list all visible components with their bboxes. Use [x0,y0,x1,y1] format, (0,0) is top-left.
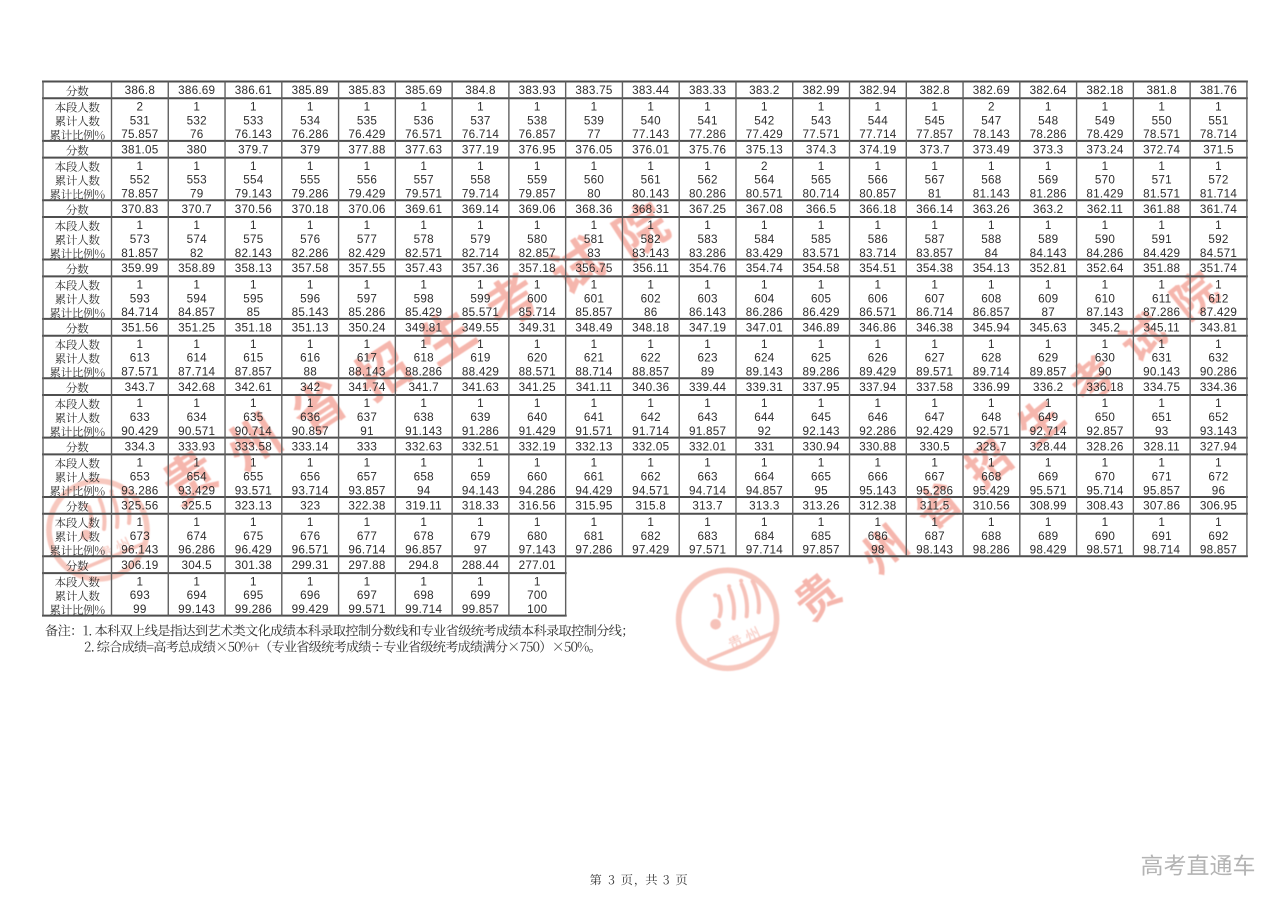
svg-text:367.25: 367.25 [689,203,726,216]
svg-text:655: 655 [243,470,264,483]
svg-text:385.83: 385.83 [348,84,385,97]
svg-text:85.286: 85.286 [348,306,385,319]
svg-text:97: 97 [474,544,488,557]
svg-text:1: 1 [875,338,882,351]
svg-text:550: 550 [1152,114,1173,127]
svg-text:1: 1 [307,457,314,470]
svg-text:89.571: 89.571 [916,366,953,379]
svg-text:1: 1 [761,457,768,470]
svg-text:1: 1 [477,575,484,588]
svg-text:1: 1 [591,516,598,529]
svg-text:96.857: 96.857 [405,544,442,557]
svg-text:534: 534 [300,114,321,127]
svg-text:349.81: 349.81 [405,322,442,335]
svg-text:93.143: 93.143 [1200,425,1237,438]
svg-text:567: 567 [925,174,945,187]
svg-text:1: 1 [250,160,257,173]
svg-text:1: 1 [193,219,200,232]
svg-text:612: 612 [1208,292,1228,305]
svg-text:88.571: 88.571 [519,366,556,379]
svg-text:1: 1 [307,160,314,173]
svg-text:626: 626 [868,352,888,365]
svg-text:332.63: 332.63 [405,440,442,453]
svg-text:1: 1 [761,101,768,114]
svg-text:667: 667 [925,470,945,483]
svg-text:313.26: 313.26 [802,500,839,513]
svg-text:597: 597 [357,292,377,305]
svg-text:699: 699 [470,589,490,602]
svg-text:94.714: 94.714 [689,484,726,497]
svg-text:1: 1 [1045,457,1052,470]
svg-text:594: 594 [187,292,208,305]
svg-text:1: 1 [477,160,484,173]
svg-text:78.286: 78.286 [1030,128,1067,141]
svg-text:357.55: 357.55 [348,262,385,275]
svg-text:1: 1 [761,219,768,232]
svg-text:93.286: 93.286 [121,484,158,497]
svg-text:99.571: 99.571 [348,603,385,616]
svg-text:337.94: 337.94 [859,381,896,394]
svg-text:1: 1 [364,457,371,470]
svg-text:328.11: 328.11 [1144,440,1180,453]
svg-text:333.93: 333.93 [178,440,215,453]
svg-text:319.11: 319.11 [406,500,442,513]
svg-text:337.95: 337.95 [802,381,839,394]
svg-text:77.857: 77.857 [916,128,953,141]
svg-text:639: 639 [470,411,490,424]
svg-text:585: 585 [811,233,832,246]
svg-text:382.94: 382.94 [859,84,896,97]
svg-text:351.56: 351.56 [121,322,158,335]
svg-text:603: 603 [697,292,717,305]
svg-text:92.429: 92.429 [916,425,953,438]
svg-text:646: 646 [868,411,888,424]
svg-text:1: 1 [647,160,654,173]
svg-text:1: 1 [591,219,598,232]
svg-text:1: 1 [364,219,371,232]
svg-text:80.857: 80.857 [859,188,896,201]
svg-text:99.714: 99.714 [405,603,442,616]
svg-text:1: 1 [875,219,882,232]
svg-text:1: 1 [364,101,371,114]
svg-text:87.143: 87.143 [1086,306,1123,319]
svg-text:1: 1 [1215,457,1222,470]
svg-text:1: 1 [647,457,654,470]
svg-text:1: 1 [1102,457,1109,470]
svg-text:89.714: 89.714 [973,366,1010,379]
svg-text:366.18: 366.18 [859,203,896,216]
svg-text:88.429: 88.429 [462,366,499,379]
svg-text:80.286: 80.286 [689,188,726,201]
svg-text:1: 1 [1102,219,1109,232]
svg-text:535: 535 [357,114,378,127]
svg-text:1: 1 [364,279,371,292]
svg-text:1: 1 [250,575,257,588]
svg-text:333.58: 333.58 [235,440,272,453]
svg-text:76.429: 76.429 [348,128,385,141]
svg-text:566: 566 [868,174,888,187]
svg-text:98.571: 98.571 [1086,544,1123,557]
svg-text:90.857: 90.857 [292,425,329,438]
svg-text:1: 1 [250,338,257,351]
svg-text:85.429: 85.429 [405,306,442,319]
svg-text:700: 700 [527,589,548,602]
svg-text:86.571: 86.571 [859,306,896,319]
svg-text:374.3: 374.3 [806,144,837,157]
svg-text:681: 681 [584,530,604,543]
svg-text:315.8: 315.8 [636,500,667,513]
svg-text:382.18: 382.18 [1086,84,1123,97]
svg-text:652: 652 [1208,411,1228,424]
svg-text:531: 531 [130,114,150,127]
svg-text:1: 1 [1215,219,1222,232]
svg-text:79.857: 79.857 [519,188,556,201]
svg-text:77.429: 77.429 [746,128,783,141]
svg-text:308.43: 308.43 [1086,500,1123,513]
svg-text:561: 561 [641,174,661,187]
svg-text:98.429: 98.429 [1030,544,1067,557]
svg-text:90.143: 90.143 [1143,366,1180,379]
svg-text:583: 583 [697,233,717,246]
svg-text:1: 1 [647,219,654,232]
svg-text:613: 613 [130,352,150,365]
svg-text:1: 1 [307,219,314,232]
svg-text:331: 331 [754,440,774,453]
svg-text:82.143: 82.143 [235,247,272,260]
svg-text:89.429: 89.429 [859,366,896,379]
svg-text:673: 673 [130,530,150,543]
svg-text:357.36: 357.36 [462,262,499,275]
svg-text:1: 1 [420,397,427,410]
svg-text:629: 629 [1038,352,1058,365]
svg-text:330.5: 330.5 [919,440,950,453]
svg-text:307.86: 307.86 [1143,500,1180,513]
svg-text:1: 1 [477,516,484,529]
svg-text:83.429: 83.429 [746,247,783,260]
svg-text:1: 1 [1215,101,1222,114]
svg-text:538: 538 [527,114,547,127]
svg-text:638: 638 [414,411,434,424]
svg-text:356.75: 356.75 [575,262,612,275]
svg-text:98: 98 [871,544,885,557]
svg-text:578: 578 [414,233,434,246]
svg-text:343.81: 343.81 [1200,322,1237,335]
svg-text:553: 553 [187,174,207,187]
svg-text:1: 1 [591,457,598,470]
svg-text:1: 1 [364,338,371,351]
svg-text:1: 1 [875,457,882,470]
svg-text:89.857: 89.857 [1030,366,1067,379]
svg-text:87.429: 87.429 [1200,306,1237,319]
svg-text:1: 1 [534,397,541,410]
svg-text:568: 568 [981,174,1001,187]
svg-text:76.571: 76.571 [405,128,442,141]
svg-text:1: 1 [1102,101,1109,114]
svg-text:1: 1 [647,516,654,529]
svg-text:79.714: 79.714 [462,188,499,201]
svg-text:2: 2 [137,101,144,114]
svg-text:373.24: 373.24 [1086,144,1123,157]
svg-text:1: 1 [988,397,995,410]
svg-text:90.429: 90.429 [121,425,158,438]
svg-text:588: 588 [981,233,1001,246]
svg-text:617: 617 [357,352,377,365]
svg-text:99.143: 99.143 [178,603,215,616]
svg-text:90.286: 90.286 [1200,366,1237,379]
svg-text:94.286: 94.286 [519,484,556,497]
svg-text:1: 1 [364,397,371,410]
svg-text:1: 1 [1158,397,1165,410]
svg-text:1: 1 [761,397,768,410]
svg-text:1: 1 [1102,397,1109,410]
svg-text:643: 643 [697,411,717,424]
svg-text:595: 595 [243,292,264,305]
svg-text:614: 614 [187,352,208,365]
svg-text:312.38: 312.38 [859,500,896,513]
svg-text:381.05: 381.05 [121,144,158,157]
svg-text:1: 1 [818,457,825,470]
svg-text:83.857: 83.857 [916,247,953,260]
svg-text:84.857: 84.857 [178,306,215,319]
svg-text:574: 574 [187,233,208,246]
svg-text:592: 592 [1208,233,1228,246]
svg-text:677: 677 [357,530,377,543]
svg-text:363.2: 363.2 [1033,203,1064,216]
svg-text:88.286: 88.286 [405,366,442,379]
svg-text:1: 1 [477,279,484,292]
svg-text:1: 1 [1158,101,1165,114]
svg-text:1: 1 [193,575,200,588]
svg-text:1: 1 [534,338,541,351]
svg-text:76: 76 [190,128,204,141]
svg-text:328.26: 328.26 [1086,440,1123,453]
svg-text:342.68: 342.68 [178,381,215,394]
svg-text:100: 100 [527,603,548,616]
svg-text:556: 556 [357,174,377,187]
svg-text:1: 1 [137,575,144,588]
svg-text:316.56: 316.56 [519,500,556,513]
svg-text:306.95: 306.95 [1200,500,1237,513]
svg-text:86.714: 86.714 [916,306,953,319]
svg-text:1: 1 [193,457,200,470]
svg-text:581: 581 [584,233,604,246]
svg-text:382.69: 382.69 [973,84,1010,97]
svg-text:334.36: 334.36 [1200,381,1237,394]
svg-text:698: 698 [414,589,434,602]
svg-text:92.714: 92.714 [1030,425,1067,438]
svg-text:336.18: 336.18 [1086,381,1123,394]
svg-text:1: 1 [534,279,541,292]
svg-text:88: 88 [303,366,317,379]
svg-text:373.49: 373.49 [973,144,1010,157]
svg-text:1: 1 [591,279,598,292]
svg-text:349.31: 349.31 [519,322,556,335]
svg-text:684: 684 [754,530,775,543]
svg-text:572: 572 [1208,174,1228,187]
svg-text:1: 1 [250,397,257,410]
svg-text:99.429: 99.429 [292,603,329,616]
svg-text:618: 618 [414,352,434,365]
svg-text:1: 1 [1158,219,1165,232]
svg-text:1: 1 [988,160,995,173]
svg-text:653: 653 [130,470,150,483]
svg-text:354.76: 354.76 [689,262,726,275]
svg-text:382.99: 382.99 [802,84,839,97]
svg-text:601: 601 [584,292,604,305]
svg-text:1: 1 [818,338,825,351]
svg-text:88.857: 88.857 [632,366,669,379]
svg-text:376.05: 376.05 [575,144,612,157]
svg-text:1: 1 [250,516,257,529]
svg-text:98.286: 98.286 [973,544,1010,557]
svg-text:1: 1 [534,101,541,114]
svg-text:537: 537 [470,114,490,127]
svg-text:333: 333 [357,440,377,453]
svg-text:78.857: 78.857 [121,188,158,201]
svg-text:1: 1 [534,219,541,232]
svg-text:573: 573 [130,233,150,246]
svg-text:575: 575 [243,233,264,246]
svg-text:383.33: 383.33 [689,84,726,97]
svg-text:1: 1 [1215,338,1222,351]
svg-text:328.7: 328.7 [976,440,1007,453]
svg-text:1: 1 [307,338,314,351]
svg-text:97.143: 97.143 [519,544,556,557]
svg-text:631: 631 [1152,352,1172,365]
svg-text:683: 683 [697,530,717,543]
svg-text:347.01: 347.01 [746,322,783,335]
svg-text:1: 1 [1045,338,1052,351]
svg-text:89: 89 [701,366,715,379]
svg-text:383.75: 383.75 [575,84,612,97]
svg-text:91.286: 91.286 [462,425,499,438]
svg-text:376.01: 376.01 [632,144,669,157]
svg-text:332.13: 332.13 [575,440,612,453]
svg-text:593: 593 [130,292,150,305]
svg-text:367.08: 367.08 [746,203,783,216]
svg-text:1: 1 [534,160,541,173]
svg-text:341.11: 341.11 [576,381,612,394]
svg-text:1: 1 [1158,279,1165,292]
svg-text:87.571: 87.571 [121,366,158,379]
svg-text:78.429: 78.429 [1086,128,1123,141]
svg-text:76.714: 76.714 [462,128,499,141]
svg-text:587: 587 [925,233,945,246]
svg-text:351.25: 351.25 [178,322,215,335]
svg-text:83.714: 83.714 [859,247,896,260]
svg-text:1: 1 [420,516,427,529]
svg-text:676: 676 [300,530,320,543]
svg-text:84: 84 [985,247,999,260]
svg-text:366.5: 366.5 [806,203,837,216]
svg-text:81.571: 81.571 [1143,188,1180,201]
svg-text:376.95: 376.95 [519,144,556,157]
svg-text:596: 596 [300,292,320,305]
svg-text:327.94: 327.94 [1200,440,1237,453]
svg-text:333.14: 333.14 [292,440,329,453]
svg-text:332.01: 332.01 [689,440,726,453]
svg-text:85.571: 85.571 [462,306,499,319]
svg-text:95.714: 95.714 [1086,484,1123,497]
svg-text:627: 627 [925,352,945,365]
svg-text:99.857: 99.857 [462,603,499,616]
svg-text:80.714: 80.714 [802,188,839,201]
svg-text:82.429: 82.429 [348,247,385,260]
svg-text:368.31: 368.31 [632,203,669,216]
svg-text:82.286: 82.286 [292,247,329,260]
svg-text:85.143: 85.143 [292,306,329,319]
svg-text:557: 557 [414,174,434,187]
svg-text:86: 86 [644,306,658,319]
svg-text:1: 1 [137,160,144,173]
svg-text:83.571: 83.571 [802,247,839,260]
svg-text:1: 1 [818,516,825,529]
svg-text:1: 1 [420,279,427,292]
svg-text:533: 533 [243,114,263,127]
svg-text:562: 562 [697,174,717,187]
svg-text:369.14: 369.14 [462,203,499,216]
svg-text:1: 1 [420,457,427,470]
svg-text:348.49: 348.49 [575,322,612,335]
svg-text:83.286: 83.286 [689,247,726,260]
svg-text:1: 1 [1045,516,1052,529]
svg-text:345.94: 345.94 [973,322,1010,335]
svg-text:675: 675 [243,530,264,543]
svg-text:342.61: 342.61 [235,381,272,394]
svg-text:674: 674 [187,530,208,543]
svg-text:1: 1 [477,457,484,470]
svg-text:91.714: 91.714 [632,425,669,438]
svg-text:96.429: 96.429 [235,544,272,557]
svg-text:1: 1 [477,338,484,351]
svg-text:313.3: 313.3 [749,500,780,513]
svg-text:620: 620 [527,352,548,365]
svg-text:1: 1 [818,279,825,292]
svg-text:383.93: 383.93 [519,84,556,97]
svg-text:697: 697 [357,589,377,602]
svg-text:608: 608 [981,292,1001,305]
svg-text:672: 672 [1208,470,1228,483]
svg-text:93.714: 93.714 [292,484,329,497]
svg-text:1: 1 [137,516,144,529]
svg-text:87: 87 [1041,306,1055,319]
svg-text:696: 696 [300,589,320,602]
svg-text:602: 602 [641,292,661,305]
svg-text:96.714: 96.714 [348,544,385,557]
svg-text:85.714: 85.714 [519,306,556,319]
svg-text:637: 637 [357,411,377,424]
svg-text:89.286: 89.286 [802,366,839,379]
svg-text:345.11: 345.11 [1144,322,1180,335]
svg-text:370.06: 370.06 [348,203,385,216]
svg-text:589: 589 [1038,233,1058,246]
svg-text:547: 547 [981,114,1001,127]
svg-text:93.857: 93.857 [348,484,385,497]
svg-text:1: 1 [137,279,144,292]
svg-text:609: 609 [1038,292,1058,305]
svg-text:1: 1 [364,160,371,173]
svg-text:370.18: 370.18 [292,203,329,216]
svg-text:93: 93 [1155,425,1169,438]
svg-text:1: 1 [307,575,314,588]
svg-text:558: 558 [470,174,490,187]
svg-text:91.429: 91.429 [519,425,556,438]
svg-text:80: 80 [587,188,601,201]
svg-text:88.143: 88.143 [348,366,385,379]
svg-text:1: 1 [818,397,825,410]
svg-text:611: 611 [1152,292,1171,305]
svg-text:694: 694 [187,589,208,602]
